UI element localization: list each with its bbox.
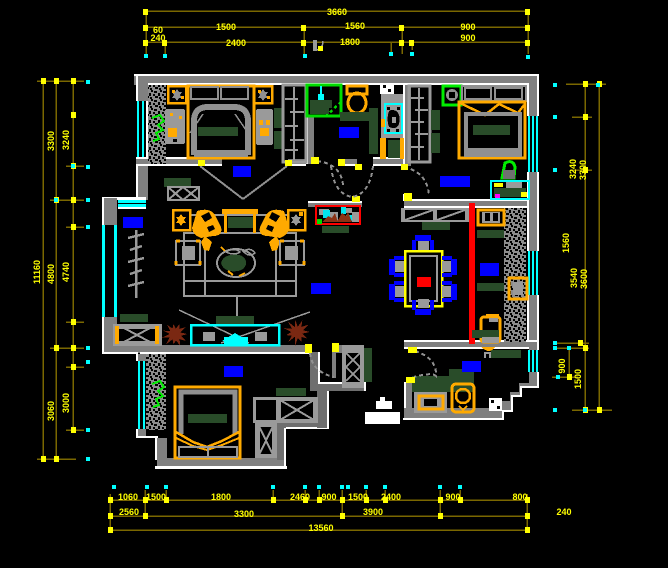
svg-text:2560: 2560 xyxy=(119,507,139,517)
svg-text:1500: 1500 xyxy=(146,492,166,502)
svg-text:4800: 4800 xyxy=(46,264,56,284)
svg-text:13560: 13560 xyxy=(308,523,333,533)
svg-text:3600: 3600 xyxy=(579,269,589,289)
svg-text:11160: 11160 xyxy=(32,260,42,284)
svg-text:1560: 1560 xyxy=(345,21,365,31)
svg-text:900: 900 xyxy=(321,492,336,502)
svg-text:3300: 3300 xyxy=(46,131,56,151)
svg-text:900: 900 xyxy=(460,33,475,43)
svg-text:3660: 3660 xyxy=(327,7,347,17)
svg-text:1500: 1500 xyxy=(216,22,236,32)
svg-text:3240: 3240 xyxy=(568,159,578,179)
svg-text:3540: 3540 xyxy=(569,268,579,288)
svg-text:3300: 3300 xyxy=(578,160,588,180)
svg-text:2400: 2400 xyxy=(381,492,401,502)
svg-text:1560: 1560 xyxy=(561,233,571,253)
svg-text:3900: 3900 xyxy=(363,507,383,517)
svg-text:3240: 3240 xyxy=(61,130,71,150)
svg-text:1500: 1500 xyxy=(348,492,368,502)
svg-text:3000: 3000 xyxy=(61,393,71,413)
svg-text:800: 800 xyxy=(512,492,527,502)
svg-text:1500: 1500 xyxy=(573,369,583,389)
svg-text:1800: 1800 xyxy=(211,492,231,502)
svg-text:4740: 4740 xyxy=(61,262,71,282)
svg-text:3300: 3300 xyxy=(234,509,254,519)
svg-text:2460: 2460 xyxy=(290,492,310,502)
svg-text:900: 900 xyxy=(460,22,475,32)
svg-text:2400: 2400 xyxy=(226,38,246,48)
svg-text:1800: 1800 xyxy=(340,37,360,47)
svg-text:900: 900 xyxy=(445,492,460,502)
svg-text:60: 60 xyxy=(153,25,163,35)
svg-text:1060: 1060 xyxy=(118,492,138,502)
svg-text:900: 900 xyxy=(557,358,567,373)
svg-text:3060: 3060 xyxy=(46,401,56,421)
svg-text:240: 240 xyxy=(556,507,571,517)
